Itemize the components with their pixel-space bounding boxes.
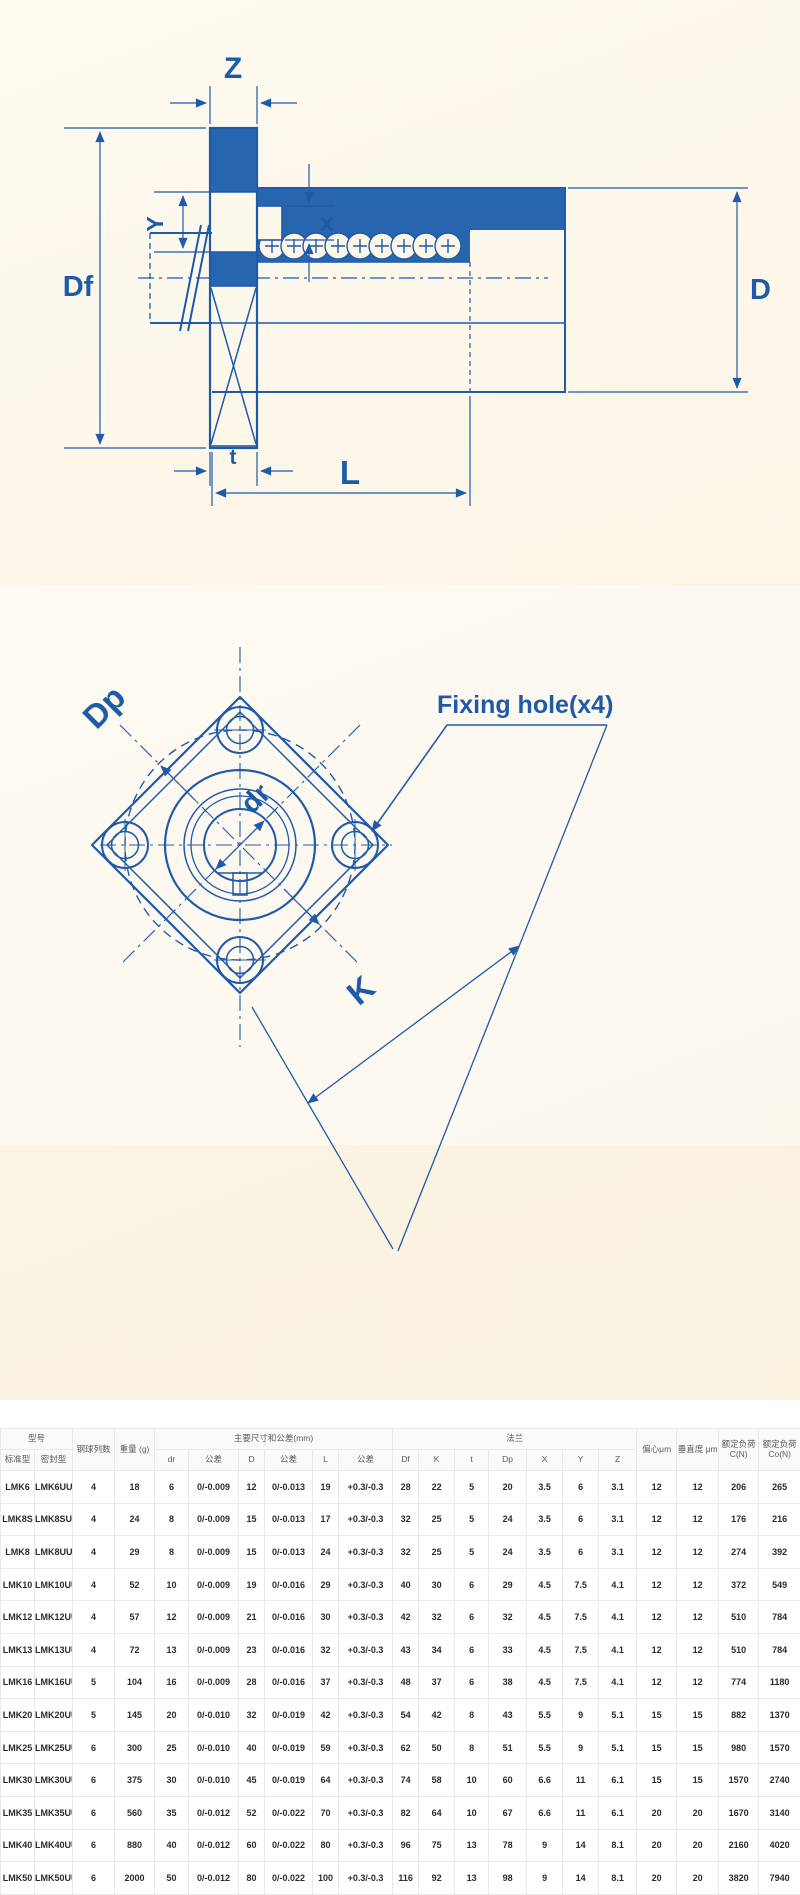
dimension-d: D [568, 188, 771, 392]
label-z: Z [224, 52, 242, 85]
value-cell: 15 [677, 1764, 719, 1797]
value-cell: 43 [393, 1633, 419, 1666]
value-cell: 7.5 [563, 1666, 599, 1699]
value-cell: 15 [239, 1536, 265, 1569]
label-y: Y [142, 216, 168, 231]
value-cell: 38 [489, 1666, 527, 1699]
value-cell: 32 [489, 1601, 527, 1634]
value-cell: 12 [677, 1666, 719, 1699]
dimension-l: L [212, 396, 470, 506]
value-cell: 12 [677, 1536, 719, 1569]
value-cell: 59 [313, 1731, 339, 1764]
value-cell: 12 [677, 1471, 719, 1504]
value-cell: 0/-0.013 [265, 1471, 313, 1504]
col-header-dr: dr [155, 1450, 189, 1471]
value-cell: 12 [677, 1601, 719, 1634]
value-cell: 12 [637, 1633, 677, 1666]
value-cell: 13 [455, 1829, 489, 1862]
value-cell: 0/-0.010 [189, 1764, 239, 1797]
value-cell: 880 [115, 1829, 155, 1862]
value-cell: 1370 [759, 1699, 800, 1732]
value-cell: 0/-0.012 [189, 1796, 239, 1829]
value-cell: 75 [419, 1829, 455, 1862]
value-cell: 274 [719, 1536, 759, 1569]
value-cell: 20 [155, 1699, 189, 1732]
value-cell: 15 [239, 1503, 265, 1536]
value-cell: 80 [313, 1829, 339, 1862]
dimension-df: Df [63, 128, 206, 448]
col-header-D: D [239, 1450, 265, 1471]
value-cell: +0.3/-0.3 [339, 1471, 393, 1504]
col-header-eccentricity: 偏心μm [637, 1429, 677, 1471]
value-cell: 5 [73, 1666, 115, 1699]
value-cell: 8.1 [599, 1829, 637, 1862]
value-cell: 6.6 [527, 1796, 563, 1829]
ball-bearing-row [259, 233, 461, 259]
model-cell: LMK50 [1, 1862, 35, 1895]
value-cell: 25 [419, 1503, 455, 1536]
value-cell: 6.1 [599, 1796, 637, 1829]
col-header-tolerance-D: 公差 [265, 1450, 313, 1471]
value-cell: 21 [239, 1601, 265, 1634]
value-cell: 265 [759, 1471, 800, 1504]
value-cell: 0/-0.009 [189, 1536, 239, 1569]
value-cell: 7940 [759, 1862, 800, 1895]
model-cell: LMK16UU [35, 1666, 73, 1699]
value-cell: 19 [313, 1471, 339, 1504]
value-cell: 4.5 [527, 1601, 563, 1634]
value-cell: +0.3/-0.3 [339, 1829, 393, 1862]
value-cell: 5.5 [527, 1699, 563, 1732]
value-cell: 784 [759, 1601, 800, 1634]
value-cell: 882 [719, 1699, 759, 1732]
value-cell: 4.1 [599, 1666, 637, 1699]
value-cell: 0/-0.022 [265, 1796, 313, 1829]
value-cell: 4.1 [599, 1633, 637, 1666]
value-cell: 54 [393, 1699, 419, 1732]
value-cell: 29 [489, 1568, 527, 1601]
value-cell: 35 [155, 1796, 189, 1829]
dimension-k: K [252, 725, 607, 1251]
value-cell: 42 [313, 1699, 339, 1732]
value-cell: 15 [637, 1731, 677, 1764]
value-cell: 0/-0.019 [265, 1699, 313, 1732]
value-cell: 11 [563, 1796, 599, 1829]
value-cell: 3.1 [599, 1471, 637, 1504]
value-cell: +0.3/-0.3 [339, 1666, 393, 1699]
value-cell: 300 [115, 1731, 155, 1764]
value-cell: 6.6 [527, 1764, 563, 1797]
value-cell: 37 [313, 1666, 339, 1699]
value-cell: 0/-0.010 [189, 1699, 239, 1732]
value-cell: 15 [677, 1731, 719, 1764]
spec-row: LMK30LMK30UU6375300/-0.010450/-0.01964+0… [1, 1764, 800, 1797]
value-cell: 6 [73, 1829, 115, 1862]
spec-row: LMK25LMK25UU6300250/-0.010400/-0.01959+0… [1, 1731, 800, 1764]
value-cell: +0.3/-0.3 [339, 1764, 393, 1797]
col-header-main-dims: 主要尺寸和公差(mm) [155, 1429, 393, 1450]
value-cell: +0.3/-0.3 [339, 1862, 393, 1895]
value-cell: 20 [637, 1862, 677, 1895]
col-header-X: X [527, 1450, 563, 1471]
value-cell: 20 [637, 1829, 677, 1862]
label-dp: Dp [75, 678, 132, 735]
value-cell: 12 [677, 1503, 719, 1536]
value-cell: 0/-0.012 [189, 1862, 239, 1895]
model-cell: LMK12 [1, 1601, 35, 1634]
spec-row: LMK8SLMK8SUU42480/-0.009150/-0.01317+0.3… [1, 1503, 800, 1536]
value-cell: 8 [155, 1503, 189, 1536]
fixing-hole-callout: Fixing hole(x4) [372, 691, 613, 831]
value-cell: 20 [677, 1796, 719, 1829]
value-cell: 6 [563, 1503, 599, 1536]
value-cell: 0/-0.009 [189, 1503, 239, 1536]
value-cell: 60 [489, 1764, 527, 1797]
flange-section [210, 128, 282, 448]
spec-row: LMK13LMK13UU472130/-0.009230/-0.01632+0.… [1, 1633, 800, 1666]
value-cell: 13 [155, 1633, 189, 1666]
value-cell: 100 [313, 1862, 339, 1895]
value-cell: 64 [419, 1796, 455, 1829]
spec-table: 型号 钢球列数 重量 (g) 主要尺寸和公差(mm) 法兰 偏心μm 垂直度 μ… [0, 1428, 800, 1895]
value-cell: 40 [393, 1568, 419, 1601]
value-cell: 32 [393, 1536, 419, 1569]
value-cell: 15 [637, 1699, 677, 1732]
value-cell: +0.3/-0.3 [339, 1568, 393, 1601]
col-header-rated-static-load: 额定负荷 Co(N) [759, 1429, 800, 1471]
value-cell: 4 [73, 1503, 115, 1536]
value-cell: 42 [419, 1699, 455, 1732]
value-cell: 12 [637, 1601, 677, 1634]
value-cell: 1570 [719, 1764, 759, 1797]
value-cell: 12 [677, 1633, 719, 1666]
value-cell: 25 [419, 1536, 455, 1569]
dimension-z: Z [170, 52, 297, 124]
value-cell: 29 [115, 1536, 155, 1569]
value-cell: 34 [419, 1633, 455, 1666]
value-cell: 4.1 [599, 1568, 637, 1601]
value-cell: 4020 [759, 1829, 800, 1862]
value-cell: 2740 [759, 1764, 800, 1797]
value-cell: 40 [155, 1829, 189, 1862]
value-cell: 6.1 [599, 1764, 637, 1797]
value-cell: 6 [73, 1862, 115, 1895]
value-cell: 28 [239, 1666, 265, 1699]
value-cell: 80 [239, 1862, 265, 1895]
value-cell: 3.5 [527, 1471, 563, 1504]
value-cell: 510 [719, 1601, 759, 1634]
col-header-flange: 法兰 [393, 1429, 637, 1450]
value-cell: 7.5 [563, 1568, 599, 1601]
model-cell: LMK16 [1, 1666, 35, 1699]
value-cell: 4.1 [599, 1601, 637, 1634]
value-cell: 116 [393, 1862, 419, 1895]
value-cell: 82 [393, 1796, 419, 1829]
spec-row: LMK40LMK40UU6880400/-0.012600/-0.02280+0… [1, 1829, 800, 1862]
spec-row: LMK8LMK8UU42980/-0.009150/-0.01324+0.3/-… [1, 1536, 800, 1569]
value-cell: 6 [73, 1796, 115, 1829]
model-cell: LMK20UU [35, 1699, 73, 1732]
col-header-tolerance-L: 公差 [339, 1450, 393, 1471]
value-cell: 43 [489, 1699, 527, 1732]
value-cell: 0/-0.009 [189, 1471, 239, 1504]
value-cell: 980 [719, 1731, 759, 1764]
value-cell: 15 [637, 1764, 677, 1797]
value-cell: 3.1 [599, 1503, 637, 1536]
value-cell: +0.3/-0.3 [339, 1796, 393, 1829]
model-cell: LMK13UU [35, 1633, 73, 1666]
value-cell: 1570 [759, 1731, 800, 1764]
value-cell: 0/-0.019 [265, 1764, 313, 1797]
model-cell: LMK10 [1, 1568, 35, 1601]
col-header-tolerance-dr: 公差 [189, 1450, 239, 1471]
model-cell: LMK8UU [35, 1536, 73, 1569]
value-cell: 24 [489, 1503, 527, 1536]
value-cell: 92 [419, 1862, 455, 1895]
value-cell: 57 [115, 1601, 155, 1634]
value-cell: +0.3/-0.3 [339, 1633, 393, 1666]
value-cell: 3820 [719, 1862, 759, 1895]
value-cell: 0/-0.016 [265, 1568, 313, 1601]
value-cell: 6 [155, 1471, 189, 1504]
value-cell: 9 [527, 1862, 563, 1895]
value-cell: 3.1 [599, 1536, 637, 1569]
value-cell: 12 [637, 1666, 677, 1699]
value-cell: 98 [489, 1862, 527, 1895]
value-cell: 30 [313, 1601, 339, 1634]
value-cell: 24 [313, 1536, 339, 1569]
value-cell: 8 [455, 1731, 489, 1764]
value-cell: 51 [489, 1731, 527, 1764]
value-cell: 0/-0.016 [265, 1601, 313, 1634]
model-cell: LMK13 [1, 1633, 35, 1666]
model-cell: LMK25UU [35, 1731, 73, 1764]
value-cell: 19 [239, 1568, 265, 1601]
dimension-y: Y [142, 192, 214, 252]
spec-table-body: LMK6LMK6UU41860/-0.009120/-0.01319+0.3/-… [1, 1471, 800, 1895]
value-cell: 12 [239, 1471, 265, 1504]
value-cell: 145 [115, 1699, 155, 1732]
value-cell: 4 [73, 1601, 115, 1634]
value-cell: 0/-0.012 [189, 1829, 239, 1862]
value-cell: 392 [759, 1536, 800, 1569]
value-cell: 12 [637, 1568, 677, 1601]
value-cell: 30 [419, 1568, 455, 1601]
value-cell: +0.3/-0.3 [339, 1536, 393, 1569]
value-cell: 372 [719, 1568, 759, 1601]
value-cell: 0/-0.016 [265, 1666, 313, 1699]
col-header-model: 型号 [1, 1429, 73, 1450]
value-cell: 6 [563, 1471, 599, 1504]
dimension-dp: Dp [75, 678, 319, 924]
value-cell: 50 [419, 1731, 455, 1764]
value-cell: 33 [489, 1633, 527, 1666]
label-t: t [230, 446, 237, 469]
model-cell: LMK8 [1, 1536, 35, 1569]
label-l: L [340, 454, 360, 491]
model-cell: LMK6 [1, 1471, 35, 1504]
value-cell: 0/-0.022 [265, 1829, 313, 1862]
value-cell: 104 [115, 1666, 155, 1699]
value-cell: 32 [393, 1503, 419, 1536]
value-cell: 14 [563, 1862, 599, 1895]
fixing-hole-label: Fixing hole(x4) [437, 691, 613, 719]
value-cell: 32 [419, 1601, 455, 1634]
label-x: x [320, 209, 334, 237]
value-cell: 60 [239, 1829, 265, 1862]
value-cell: 6 [73, 1764, 115, 1797]
label-df: Df [63, 271, 94, 303]
value-cell: 72 [115, 1633, 155, 1666]
value-cell: 96 [393, 1829, 419, 1862]
value-cell: 6 [563, 1536, 599, 1569]
cross-section-diagram: Z Y x Df D [0, 0, 800, 585]
col-header-ball-rows: 钢球列数 [73, 1429, 115, 1471]
bearing-spec-page: Z Y x Df D [0, 0, 800, 1895]
value-cell: 5 [455, 1471, 489, 1504]
value-cell: 16 [155, 1666, 189, 1699]
value-cell: 1670 [719, 1796, 759, 1829]
spec-row: LMK16LMK16UU5104160/-0.009280/-0.01637+0… [1, 1666, 800, 1699]
value-cell: 6 [455, 1568, 489, 1601]
value-cell: 70 [313, 1796, 339, 1829]
spec-row: LMK6LMK6UU41860/-0.009120/-0.01319+0.3/-… [1, 1471, 800, 1504]
value-cell: 6 [455, 1601, 489, 1634]
model-cell: LMK30UU [35, 1764, 73, 1797]
value-cell: 0/-0.009 [189, 1568, 239, 1601]
model-cell: LMK6UU [35, 1471, 73, 1504]
value-cell: 4.5 [527, 1568, 563, 1601]
value-cell: 24 [115, 1503, 155, 1536]
value-cell: 4 [73, 1633, 115, 1666]
value-cell: 206 [719, 1471, 759, 1504]
value-cell: 3.5 [527, 1503, 563, 1536]
label-d: D [750, 274, 771, 306]
value-cell: 4 [73, 1536, 115, 1569]
value-cell: 32 [239, 1699, 265, 1732]
value-cell: 30 [155, 1764, 189, 1797]
spec-row: LMK35LMK35UU6560350/-0.012520/-0.02270+0… [1, 1796, 800, 1829]
model-cell: LMK35 [1, 1796, 35, 1829]
model-cell: LMK20 [1, 1699, 35, 1732]
value-cell: 3.5 [527, 1536, 563, 1569]
spec-row: LMK10LMK10UU452100/-0.009190/-0.01629+0.… [1, 1568, 800, 1601]
value-cell: 0/-0.022 [265, 1862, 313, 1895]
value-cell: 0/-0.013 [265, 1536, 313, 1569]
value-cell: 64 [313, 1764, 339, 1797]
value-cell: 12 [637, 1503, 677, 1536]
value-cell: +0.3/-0.3 [339, 1699, 393, 1732]
col-header-Dp: Dp [489, 1450, 527, 1471]
value-cell: 5.1 [599, 1699, 637, 1732]
model-cell: LMK40UU [35, 1829, 73, 1862]
value-cell: 23 [239, 1633, 265, 1666]
col-header-Y: Y [563, 1450, 599, 1471]
value-cell: 25 [155, 1731, 189, 1764]
value-cell: 13 [455, 1862, 489, 1895]
value-cell: 4.5 [527, 1633, 563, 1666]
spec-row: LMK50LMK50UU62000500/-0.012800/-0.022100… [1, 1862, 800, 1895]
value-cell: 42 [393, 1601, 419, 1634]
value-cell: 176 [719, 1503, 759, 1536]
value-cell: 0/-0.009 [189, 1601, 239, 1634]
value-cell: 3140 [759, 1796, 800, 1829]
value-cell: 17 [313, 1503, 339, 1536]
col-header-K: K [419, 1450, 455, 1471]
col-header-rated-dynamic-load: 额定负荷 C(N) [719, 1429, 759, 1471]
value-cell: 10 [455, 1764, 489, 1797]
value-cell: 7.5 [563, 1633, 599, 1666]
value-cell: 4 [73, 1568, 115, 1601]
value-cell: 11 [563, 1764, 599, 1797]
value-cell: 45 [239, 1764, 265, 1797]
value-cell: 12 [155, 1601, 189, 1634]
col-header-sealed: 密封型 [35, 1450, 73, 1471]
value-cell: 1180 [759, 1666, 800, 1699]
value-cell: 58 [419, 1764, 455, 1797]
value-cell: 774 [719, 1666, 759, 1699]
value-cell: 29 [313, 1568, 339, 1601]
value-cell: 8.1 [599, 1862, 637, 1895]
value-cell: 0/-0.013 [265, 1503, 313, 1536]
value-cell: 40 [239, 1731, 265, 1764]
model-cell: LMK30 [1, 1764, 35, 1797]
value-cell: 549 [759, 1568, 800, 1601]
model-cell: LMK40 [1, 1829, 35, 1862]
value-cell: 28 [393, 1471, 419, 1504]
value-cell: 216 [759, 1503, 800, 1536]
value-cell: 18 [115, 1471, 155, 1504]
value-cell: 12 [637, 1536, 677, 1569]
value-cell: 12 [637, 1471, 677, 1504]
value-cell: 10 [155, 1568, 189, 1601]
value-cell: 9 [563, 1731, 599, 1764]
value-cell: 510 [719, 1633, 759, 1666]
value-cell: 74 [393, 1764, 419, 1797]
col-header-Z: Z [599, 1450, 637, 1471]
model-cell: LMK25 [1, 1731, 35, 1764]
value-cell: 48 [393, 1666, 419, 1699]
value-cell: 20 [637, 1796, 677, 1829]
value-cell: 0/-0.009 [189, 1633, 239, 1666]
value-cell: 0/-0.016 [265, 1633, 313, 1666]
value-cell: 32 [313, 1633, 339, 1666]
header-row-groups: 型号 钢球列数 重量 (g) 主要尺寸和公差(mm) 法兰 偏心μm 垂直度 μ… [1, 1429, 800, 1450]
value-cell: 24 [489, 1536, 527, 1569]
value-cell: 2000 [115, 1862, 155, 1895]
value-cell: 0/-0.009 [189, 1666, 239, 1699]
value-cell: 784 [759, 1633, 800, 1666]
flange-front-view-diagram: Dp dr Fixing hole(x4) K [0, 585, 800, 1255]
col-header-Df: Df [393, 1450, 419, 1471]
value-cell: +0.3/-0.3 [339, 1503, 393, 1536]
value-cell: 4.5 [527, 1666, 563, 1699]
spec-table-section: 型号 钢球列数 重量 (g) 主要尺寸和公差(mm) 法兰 偏心μm 垂直度 μ… [0, 1400, 800, 1895]
model-cell: LMK8SUU [35, 1503, 73, 1536]
value-cell: 52 [239, 1796, 265, 1829]
col-header-weight: 重量 (g) [115, 1429, 155, 1471]
value-cell: 14 [563, 1829, 599, 1862]
value-cell: 5 [455, 1503, 489, 1536]
value-cell: 62 [393, 1731, 419, 1764]
value-cell: 0/-0.019 [265, 1731, 313, 1764]
model-cell: LMK10UU [35, 1568, 73, 1601]
value-cell: 15 [677, 1699, 719, 1732]
value-cell: 10 [455, 1796, 489, 1829]
value-cell: 37 [419, 1666, 455, 1699]
value-cell: 78 [489, 1829, 527, 1862]
model-cell: LMK12UU [35, 1601, 73, 1634]
